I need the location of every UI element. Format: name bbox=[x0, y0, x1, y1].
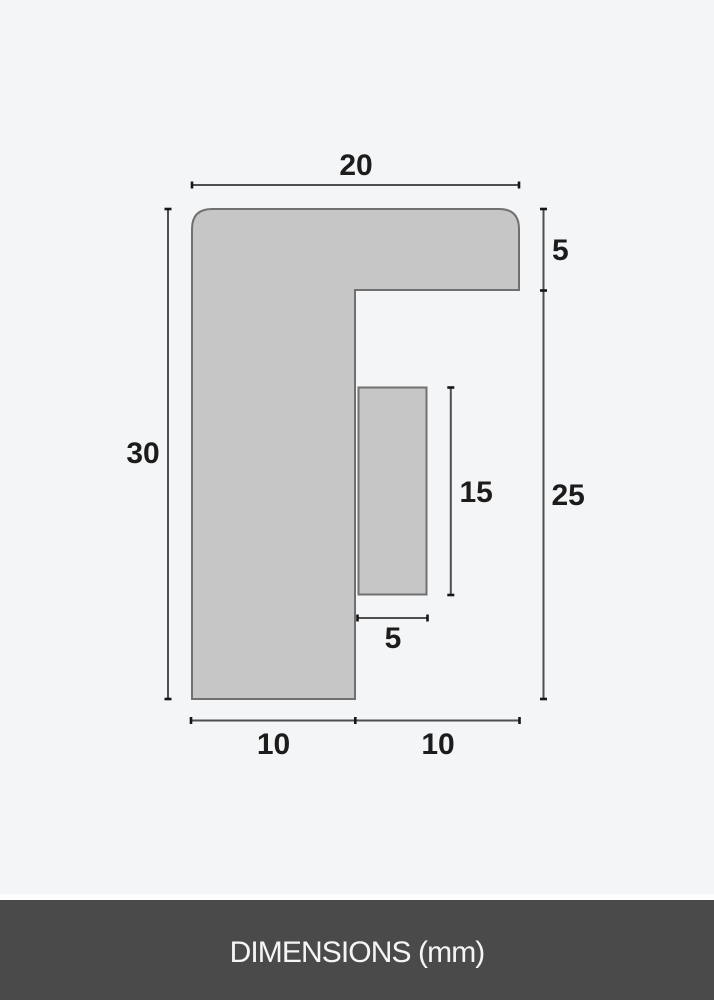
svg-text:15: 15 bbox=[460, 476, 493, 509]
svg-text:10: 10 bbox=[257, 728, 290, 761]
svg-text:25: 25 bbox=[552, 479, 585, 512]
svg-text:5: 5 bbox=[552, 234, 569, 267]
svg-text:20: 20 bbox=[339, 149, 372, 182]
svg-text:5: 5 bbox=[385, 622, 402, 655]
svg-text:30: 30 bbox=[126, 437, 159, 470]
svg-text:DIMENSIONS (mm): DIMENSIONS (mm) bbox=[230, 936, 485, 969]
svg-text:10: 10 bbox=[421, 728, 454, 761]
